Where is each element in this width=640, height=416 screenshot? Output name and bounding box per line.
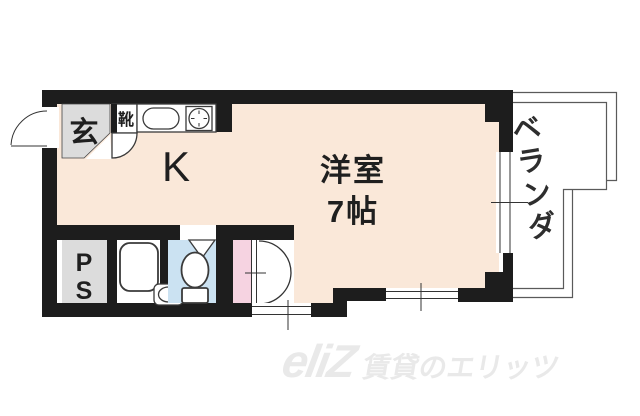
closet <box>233 240 294 304</box>
shoe-cabinet-label: 靴 <box>118 110 134 129</box>
pipe-space-label-s: S <box>76 277 93 305</box>
floor-plan: 玄 靴 K 洋室 7帖 P S ベランダ eliZ 賃貸のエリッツ <box>0 0 640 416</box>
toilet-icon <box>182 253 209 304</box>
main-room-label: 洋室 <box>320 153 386 188</box>
pipe-space-label-p: P <box>76 249 93 277</box>
watermark-logo: eliZ <box>279 338 358 384</box>
entrance-opening <box>40 107 59 148</box>
entrance-label: 玄 <box>69 115 98 149</box>
window-bottom-left <box>252 300 311 330</box>
stove-icon <box>186 107 212 131</box>
toilet-room <box>168 240 216 303</box>
main-room-size-label: 7帖 <box>327 194 379 229</box>
closet-area <box>233 240 252 303</box>
kitchen-sink-icon <box>143 108 179 129</box>
kitchen-label: K <box>162 143 190 190</box>
watermark-text: 賃貸のエリッツ <box>360 352 562 384</box>
kitchen-counter <box>137 104 216 132</box>
watermark: eliZ 賃貸のエリッツ <box>279 338 564 384</box>
bathtub-icon <box>120 243 158 291</box>
toilet-door-opening <box>180 225 216 240</box>
